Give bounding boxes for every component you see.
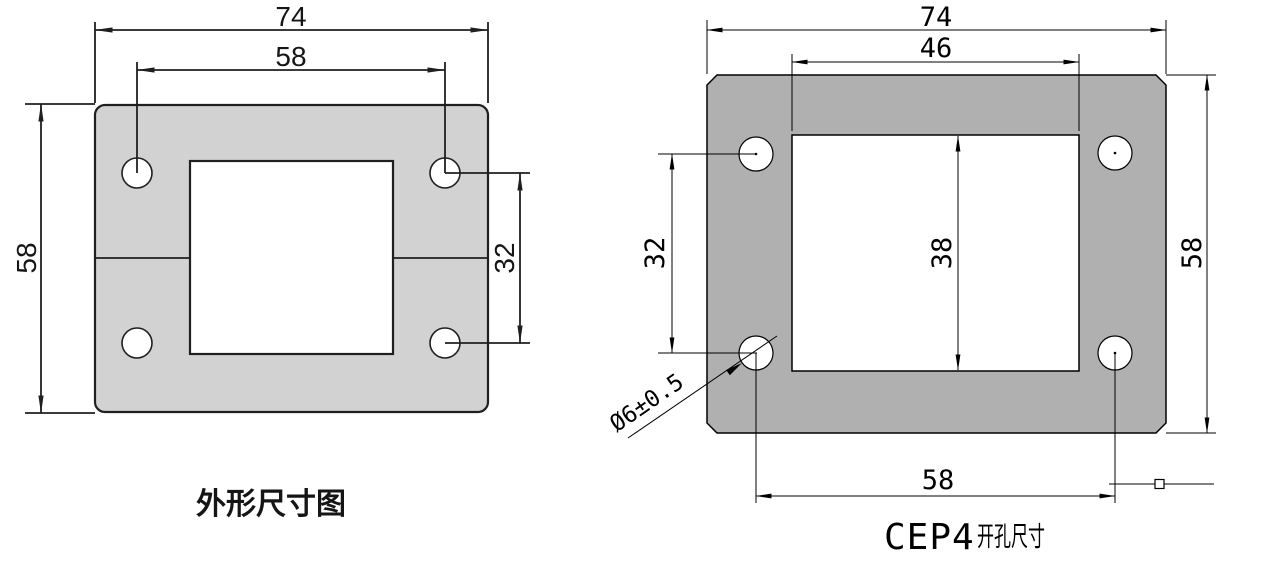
- left-diagram-caption: 外形尺寸图: [196, 488, 346, 521]
- dim-label-overall-width: 74: [275, 1, 306, 32]
- dim-overall-height: 58: [11, 104, 95, 413]
- drawing-svg: 74 58 58 32 外形尺寸图: [0, 0, 1284, 567]
- right-diagram-caption-model: CEP4: [884, 517, 975, 558]
- panel-cutout: [190, 161, 393, 354]
- dim-label-overall-width: 74: [920, 2, 953, 33]
- dim-label-cutout-width: 46: [920, 33, 953, 64]
- mounting-hole-bottom-left: [122, 328, 152, 358]
- cutout-dimension-diagram: 74 46 58 38 32: [605, 2, 1216, 558]
- hole-center-mark: [1114, 152, 1117, 155]
- dim-label-overall-height: 58: [1177, 237, 1208, 270]
- dim-label-hole-spacing-horizontal: 58: [922, 465, 955, 496]
- dim-label-hole-diameter: Ø6±0.5: [605, 369, 688, 437]
- dim-label-hole-spacing-horizontal: 58: [275, 41, 306, 72]
- dim-overall-height: 58: [1166, 75, 1216, 433]
- dim-label-overall-height: 58: [11, 242, 42, 273]
- grip-square: [1155, 480, 1164, 489]
- technical-drawing-page: 74 58 58 32 外形尺寸图: [0, 0, 1284, 567]
- dim-label-hole-spacing-vertical: 32: [489, 242, 520, 273]
- dim-label-cutout-height: 38: [927, 237, 958, 270]
- dim-label-hole-spacing-vertical: 32: [640, 237, 671, 270]
- outline-dimension-diagram: 74 58 58 32 外形尺寸图: [11, 1, 530, 521]
- grip-marker: [1109, 480, 1214, 489]
- right-diagram-caption-text: 开孔尺寸: [977, 522, 1045, 553]
